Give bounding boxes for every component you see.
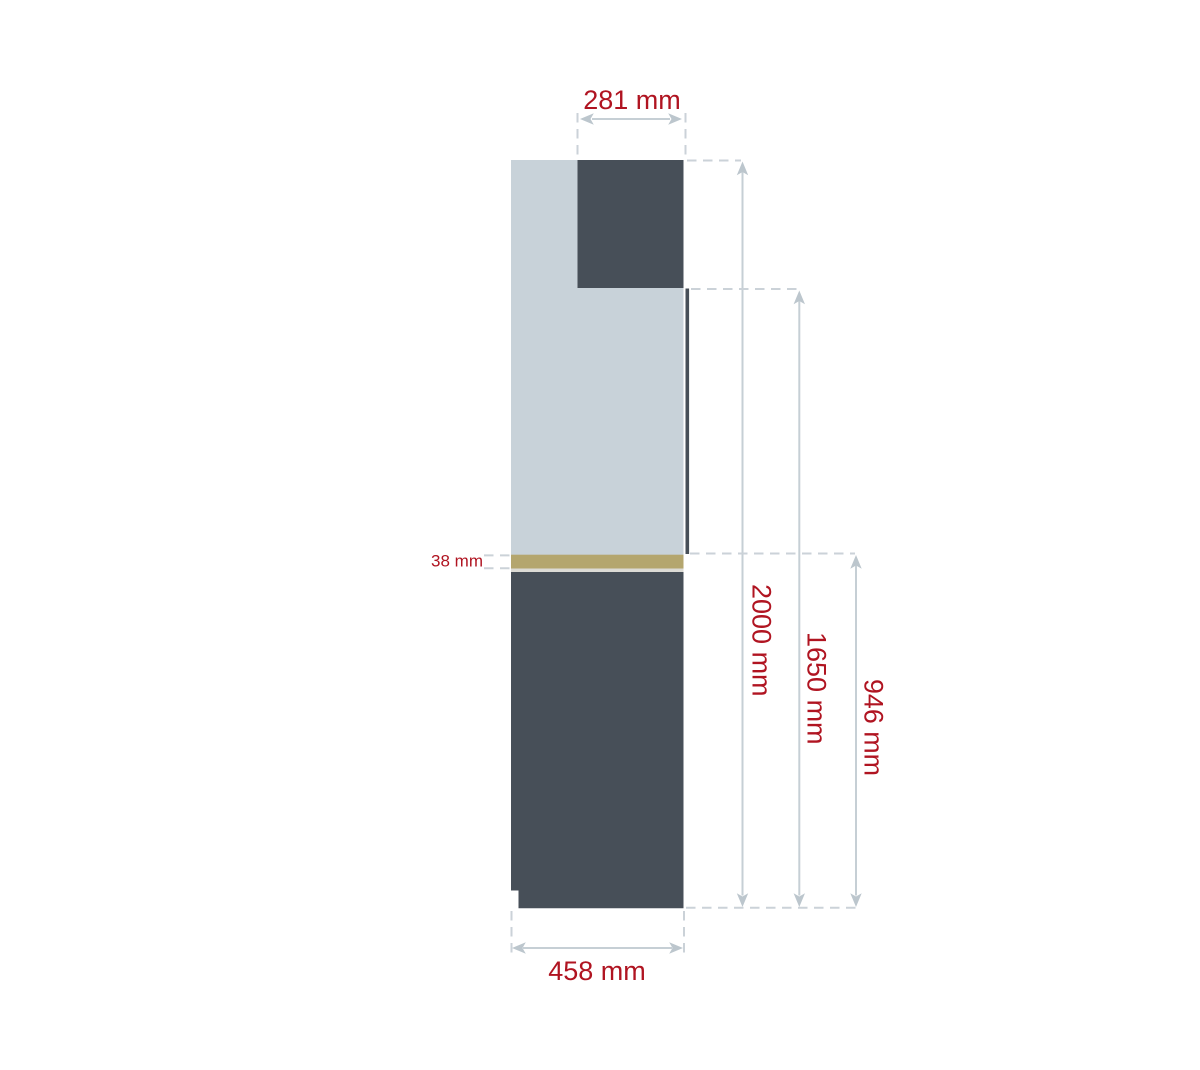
svg-text:38 mm: 38 mm (431, 552, 483, 571)
svg-text:2000 mm: 2000 mm (747, 584, 777, 697)
svg-text:1650 mm: 1650 mm (802, 632, 832, 745)
svg-text:458 mm: 458 mm (548, 956, 646, 986)
svg-text:946 mm: 946 mm (859, 679, 889, 776)
svg-text:281 mm: 281 mm (583, 85, 681, 115)
